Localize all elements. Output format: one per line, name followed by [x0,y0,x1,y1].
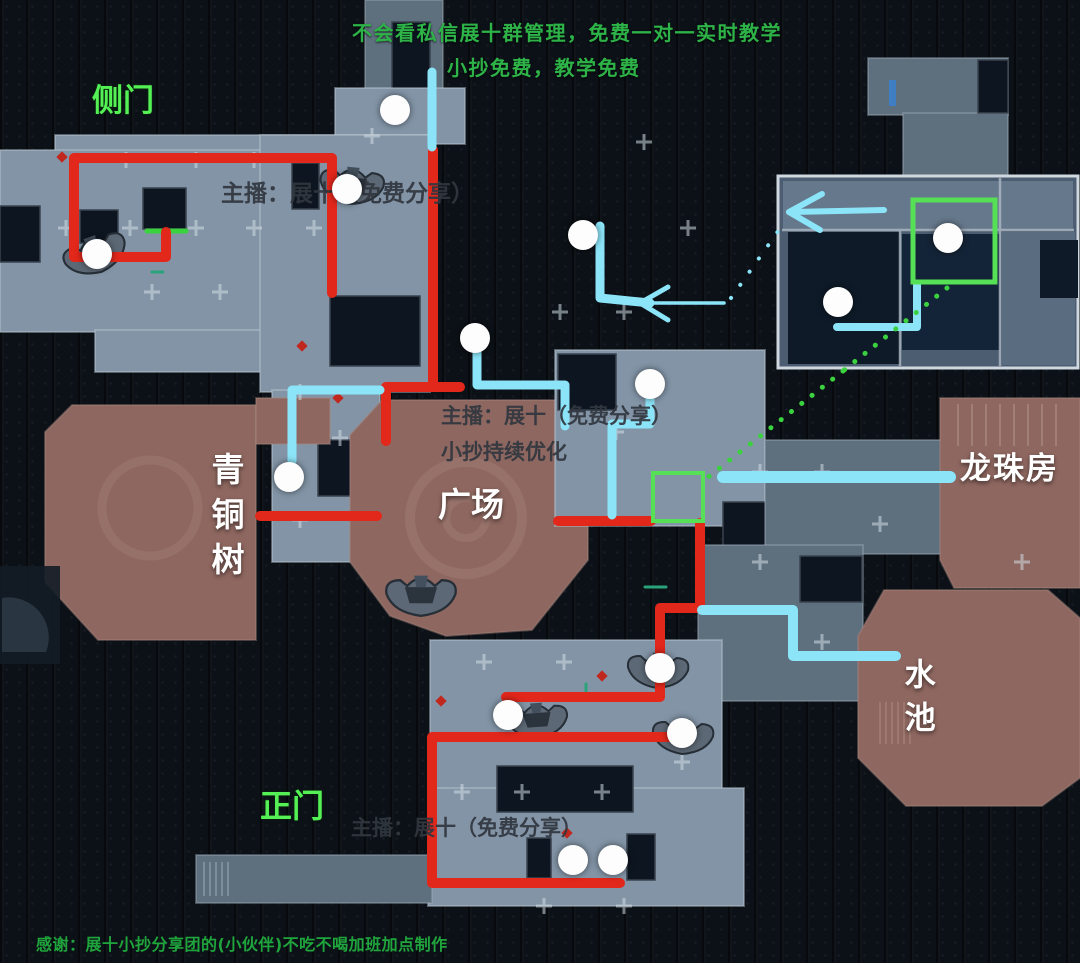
wall-cross [616,304,632,320]
buildings [0,0,1080,906]
map-canvas [0,0,1080,963]
cyan-route [640,303,668,320]
cyan-route [600,226,650,303]
cyan-route [792,210,884,212]
wall-cross [680,220,696,236]
blue-door-mark [889,80,896,106]
building-dragon-ball [940,398,1080,588]
area-bronze-tree [45,405,256,640]
cyan-route [640,287,668,303]
wall-cross [636,134,652,150]
game-map-screenshot: 不会看私信展十群管理，免费一对一实时教学 小抄免费，教学免费 侧门 主播：展十（… [0,0,1080,963]
inset-room [778,176,1078,368]
area-pool [858,590,1080,806]
wall-cross [552,304,568,320]
